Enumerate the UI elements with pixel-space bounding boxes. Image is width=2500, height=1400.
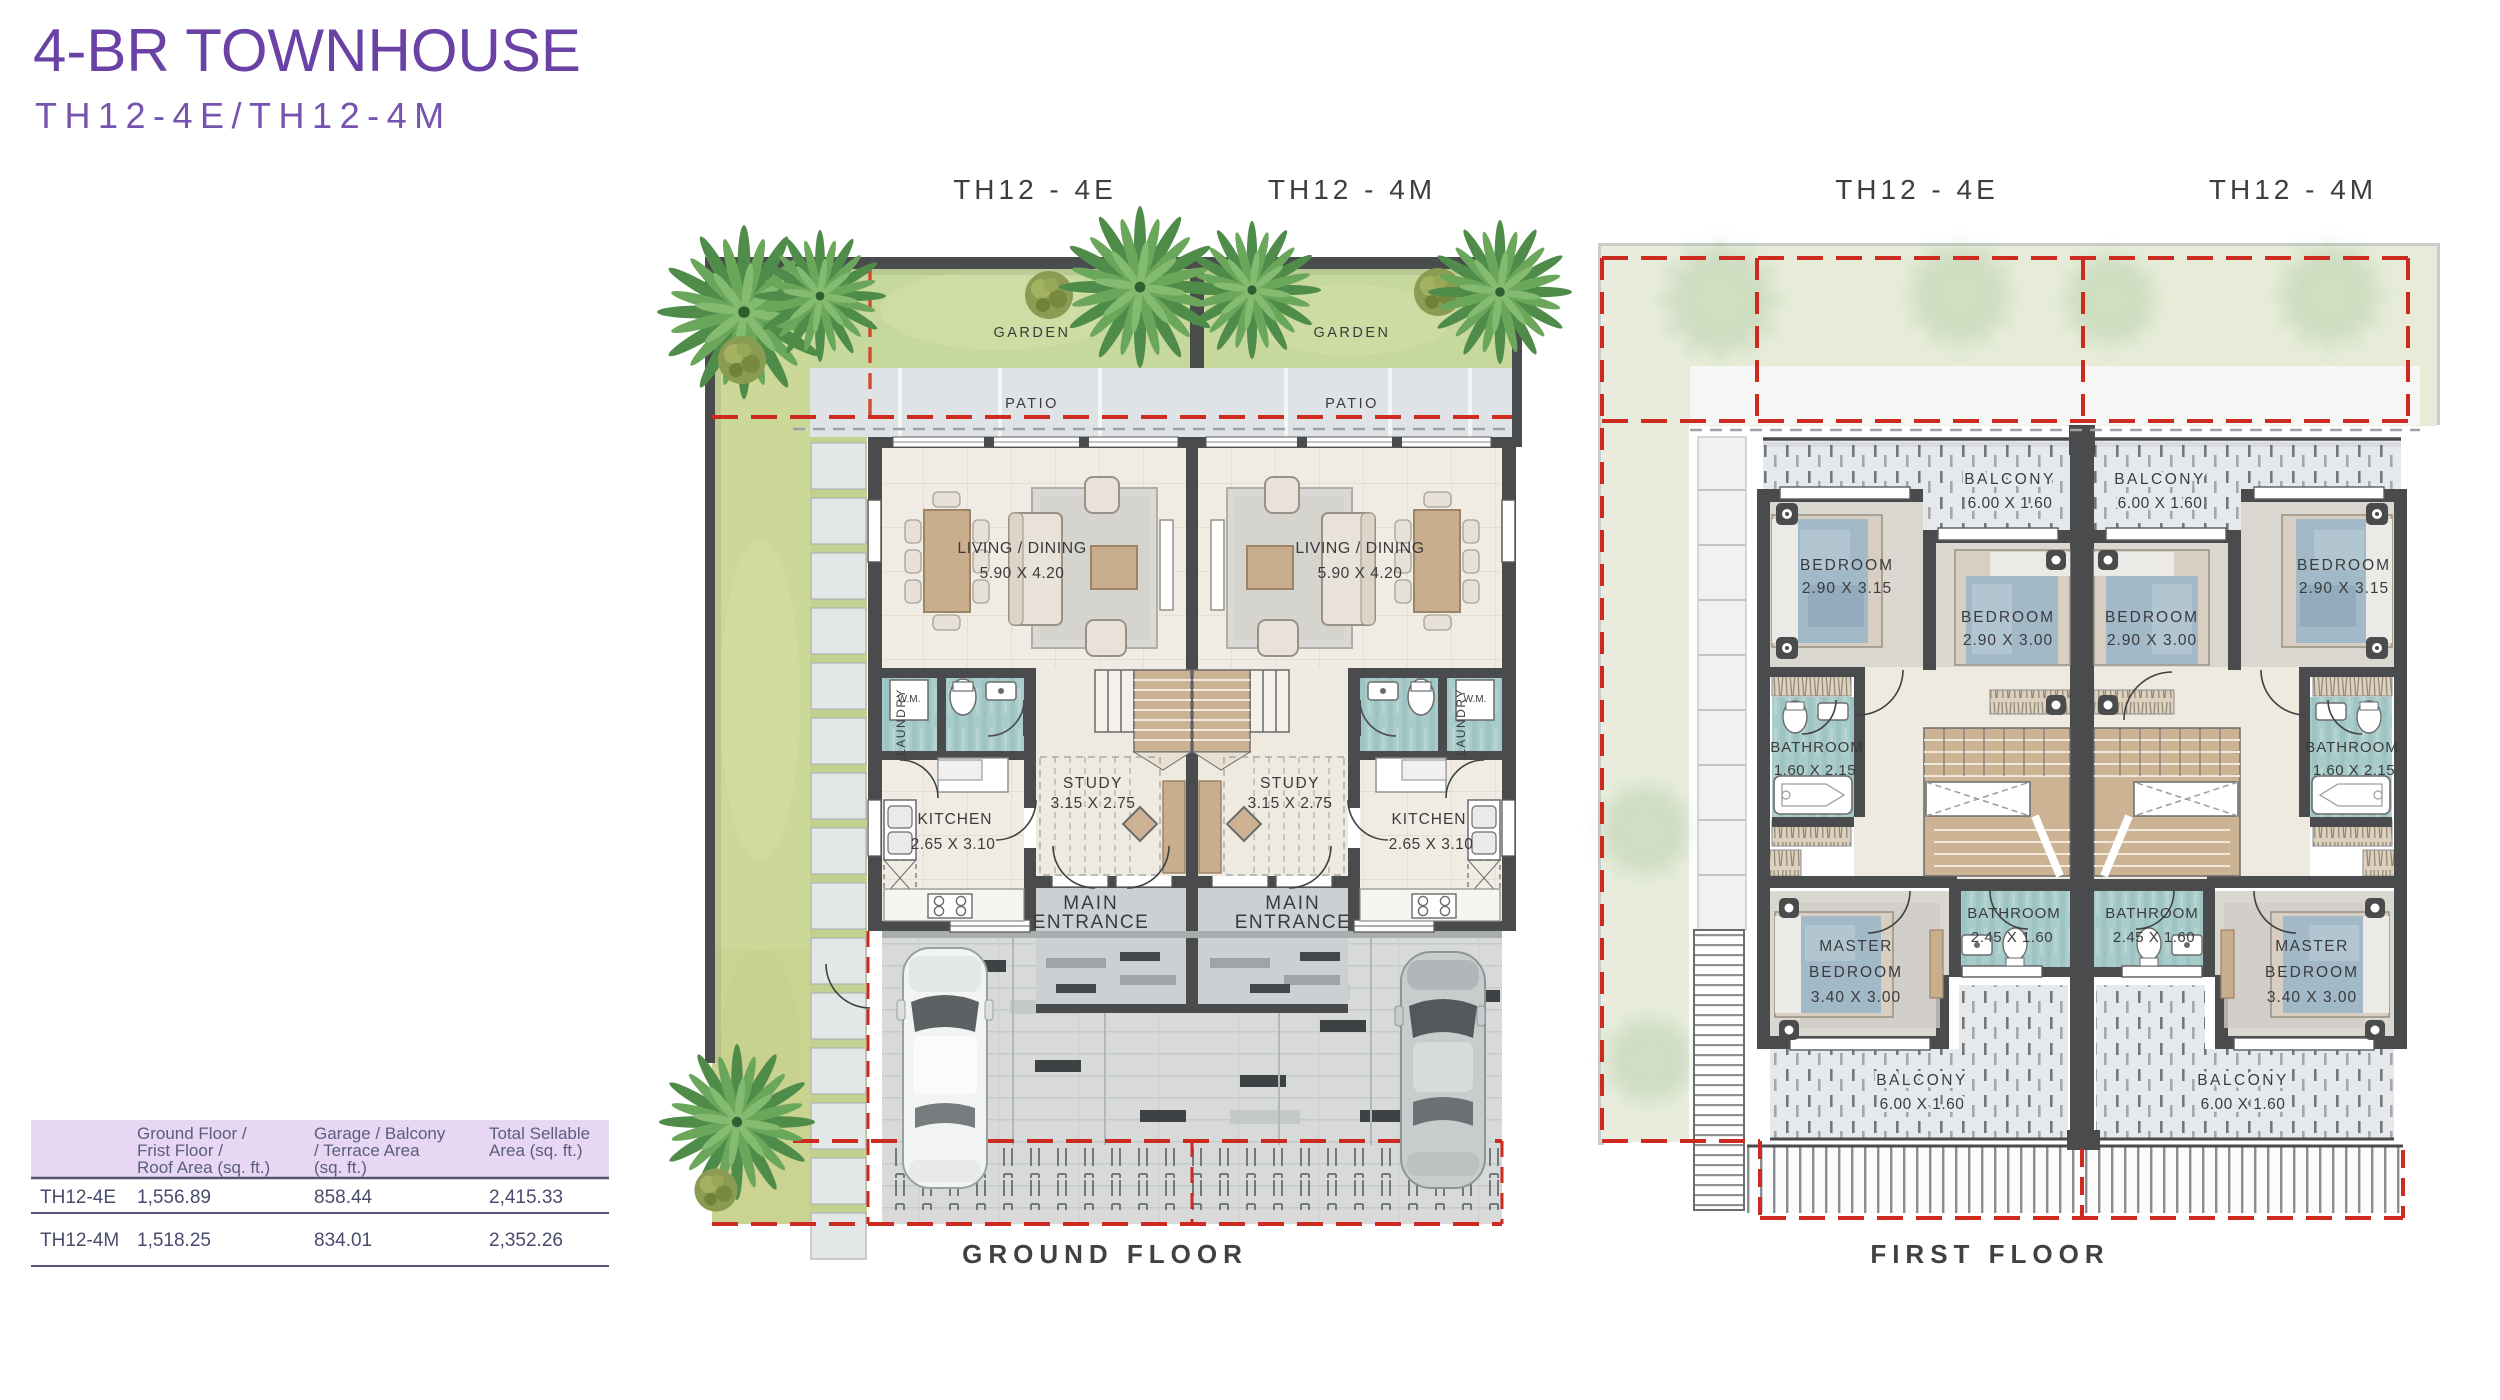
svg-text:BEDROOM: BEDROOM xyxy=(1809,964,1903,981)
svg-text:LIVING / DINING: LIVING / DINING xyxy=(1295,540,1424,557)
svg-text:BATHROOM: BATHROOM xyxy=(2305,739,2399,756)
svg-text:2.65 X 3.10: 2.65 X 3.10 xyxy=(911,836,996,853)
svg-text:BEDROOM: BEDROOM xyxy=(1800,557,1894,574)
svg-text:BALCONY: BALCONY xyxy=(2114,471,2206,488)
svg-text:BATHROOM: BATHROOM xyxy=(1770,739,1864,756)
svg-text:3.40 X 3.00: 3.40 X 3.00 xyxy=(1811,989,1901,1006)
svg-text:BALCONY: BALCONY xyxy=(2197,1072,2289,1089)
svg-text:MASTER: MASTER xyxy=(2275,938,2349,955)
svg-text:TH12 - 4E: TH12 - 4E xyxy=(1835,174,1999,205)
svg-text:FIRST FLOOR: FIRST FLOOR xyxy=(1870,1239,2109,1269)
svg-text:2.45 X 1.60: 2.45 X 1.60 xyxy=(2113,929,2195,946)
svg-text:1.60 X 2.15: 1.60 X 2.15 xyxy=(2313,762,2395,779)
svg-text:1,556.89: 1,556.89 xyxy=(137,1187,211,1208)
svg-text:BEDROOM: BEDROOM xyxy=(2297,557,2391,574)
svg-text:2.90 X 3.00: 2.90 X 3.00 xyxy=(2107,632,2197,649)
svg-text:Area (sq. ft.): Area (sq. ft.) xyxy=(489,1141,583,1160)
svg-text:KITCHEN: KITCHEN xyxy=(917,811,992,828)
svg-text:5.90 X 4.20: 5.90 X 4.20 xyxy=(1318,565,1403,582)
svg-text:4-BR TOWNHOUSE: 4-BR TOWNHOUSE xyxy=(33,17,581,84)
svg-text:2.45 X 1.60: 2.45 X 1.60 xyxy=(1971,929,2053,946)
svg-text:ENTRANCE: ENTRANCE xyxy=(1235,912,1352,933)
svg-text:MAIN: MAIN xyxy=(1265,893,1321,914)
svg-text:TH12-4M: TH12-4M xyxy=(40,1230,119,1251)
svg-text:LIVING / DINING: LIVING / DINING xyxy=(957,540,1086,557)
svg-text:MAIN: MAIN xyxy=(1063,893,1119,914)
svg-text:2.65 X 3.10: 2.65 X 3.10 xyxy=(1389,836,1474,853)
svg-text:W.M.: W.M. xyxy=(1464,694,1487,705)
svg-text:6.00 X 1.60: 6.00 X 1.60 xyxy=(1880,1096,1965,1113)
svg-text:BALCONY: BALCONY xyxy=(1964,471,2056,488)
svg-text:BEDROOM: BEDROOM xyxy=(2105,609,2199,626)
svg-text:GROUND FLOOR: GROUND FLOOR xyxy=(962,1239,1248,1269)
svg-text:6.00 X 1.60: 6.00 X 1.60 xyxy=(2118,495,2203,512)
svg-text:6.00 X 1.60: 6.00 X 1.60 xyxy=(2201,1096,2286,1113)
svg-text:834.01: 834.01 xyxy=(314,1230,372,1251)
svg-text:STUDY: STUDY xyxy=(1260,775,1320,792)
svg-text:BEDROOM: BEDROOM xyxy=(1961,609,2055,626)
svg-text:BEDROOM: BEDROOM xyxy=(2265,964,2359,981)
svg-text:BALCONY: BALCONY xyxy=(1876,1072,1968,1089)
svg-text:6.00 X 1.60: 6.00 X 1.60 xyxy=(1968,495,2053,512)
svg-text:BATHROOM: BATHROOM xyxy=(1967,905,2061,922)
svg-text:Roof Area (sq. ft.): Roof Area (sq. ft.) xyxy=(137,1158,270,1177)
svg-text:5.90 X 4.20: 5.90 X 4.20 xyxy=(980,565,1065,582)
svg-text:GARDEN: GARDEN xyxy=(993,325,1070,341)
svg-text:1.60 X 2.15: 1.60 X 2.15 xyxy=(1774,762,1856,779)
svg-text:GARDEN: GARDEN xyxy=(1313,325,1390,341)
svg-text:KITCHEN: KITCHEN xyxy=(1391,811,1466,828)
svg-text:858.44: 858.44 xyxy=(314,1187,373,1208)
svg-text:2,415.33: 2,415.33 xyxy=(489,1187,563,1208)
svg-text:2,352.26: 2,352.26 xyxy=(489,1230,563,1251)
svg-text:3.40 X 3.00: 3.40 X 3.00 xyxy=(2267,989,2357,1006)
svg-text:2.90 X 3.15: 2.90 X 3.15 xyxy=(1802,580,1892,597)
svg-text:BATHROOM: BATHROOM xyxy=(2105,905,2199,922)
svg-text:PATIO: PATIO xyxy=(1005,396,1059,412)
svg-text:(sq. ft.): (sq. ft.) xyxy=(314,1158,367,1177)
svg-text:TH12 - 4M: TH12 - 4M xyxy=(1268,174,1436,205)
svg-text:2.90 X 3.00: 2.90 X 3.00 xyxy=(1963,632,2053,649)
svg-text:3.15 X 2.75: 3.15 X 2.75 xyxy=(1248,795,1333,812)
svg-text:W.M.: W.M. xyxy=(898,694,921,705)
svg-text:MASTER: MASTER xyxy=(1819,938,1893,955)
svg-text:3.15 X 2.75: 3.15 X 2.75 xyxy=(1051,795,1136,812)
svg-text:1,518.25: 1,518.25 xyxy=(137,1230,211,1251)
svg-text:TH12 - 4M: TH12 - 4M xyxy=(2209,174,2377,205)
svg-text:TH12-4E: TH12-4E xyxy=(40,1187,116,1208)
svg-text:ENTRANCE: ENTRANCE xyxy=(1033,912,1150,933)
svg-text:STUDY: STUDY xyxy=(1063,775,1123,792)
svg-text:TH12-4E/TH12-4M: TH12-4E/TH12-4M xyxy=(35,95,452,136)
svg-text:2.90 X 3.15: 2.90 X 3.15 xyxy=(2299,580,2389,597)
svg-text:PATIO: PATIO xyxy=(1325,396,1379,412)
svg-text:TH12 - 4E: TH12 - 4E xyxy=(953,174,1117,205)
